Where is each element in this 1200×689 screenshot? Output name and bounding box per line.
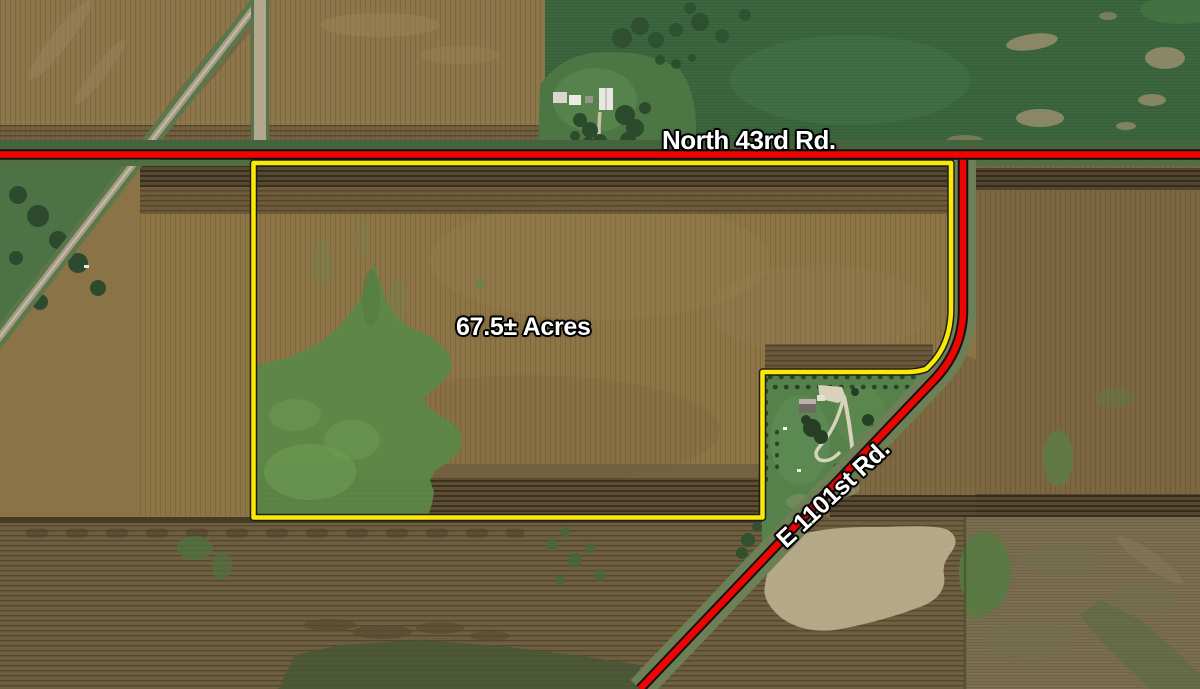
- acres-label: 67.5± Acres: [456, 315, 591, 340]
- gravel-road-north: [251, 0, 269, 150]
- aerial-map: North 43rd Rd. 67.5± Acres E 1101st Rd.: [0, 0, 1200, 689]
- satellite-imagery: [0, 0, 1200, 689]
- north-road-label: North 43rd Rd.: [662, 127, 836, 153]
- field-east: [976, 162, 1200, 518]
